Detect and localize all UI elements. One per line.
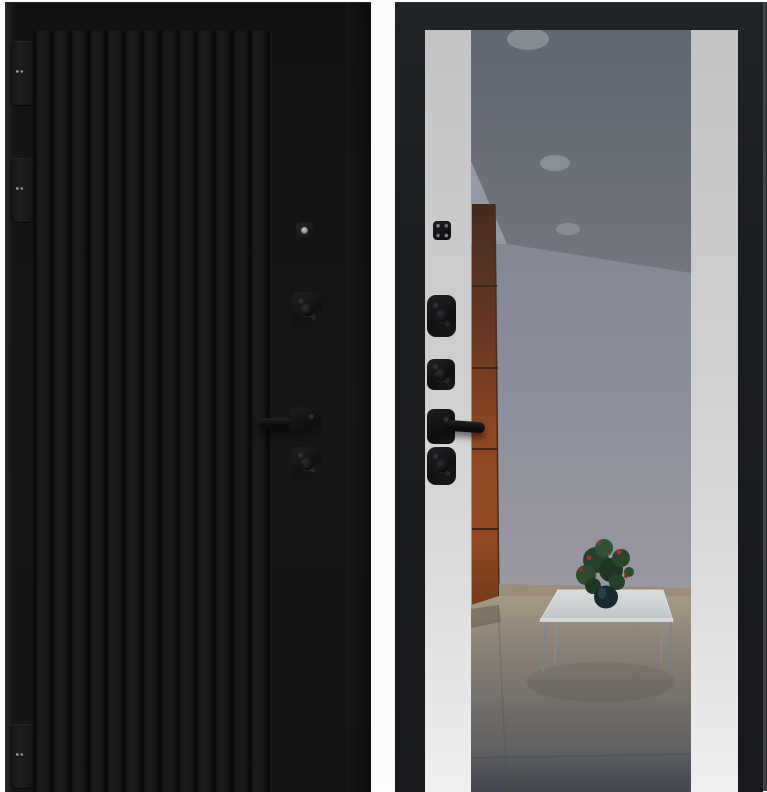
hinge-pin-dots (15, 70, 24, 73)
peephole-cylinder (296, 222, 313, 240)
hinge-bottom (10, 724, 33, 789)
side-panel-right (691, 30, 738, 792)
mirror-insert (471, 30, 691, 792)
keyhole-escutcheon-lower (292, 447, 321, 480)
hinge-pin-dots (15, 753, 24, 756)
keyhole (300, 457, 313, 470)
peephole-lens (301, 227, 308, 234)
keyhole-escutcheon-upper (292, 292, 322, 328)
door-panel-seam (347, 3, 348, 792)
hinge-pin-dots (15, 187, 24, 190)
hinge-top (10, 41, 33, 106)
door-edge-shading (353, 3, 371, 792)
lock-escutcheon-middle (427, 359, 455, 390)
photo-right-edge-shadow (763, 2, 767, 791)
mirror-reflection-scene (471, 30, 691, 792)
door-left-edge (5, 3, 13, 792)
handle-backplate-exterior (290, 407, 321, 439)
keyhole (435, 460, 448, 473)
door-interior-panel (395, 2, 763, 792)
door-interior-inlay (425, 30, 738, 792)
keyhole (435, 310, 448, 323)
keyhole (435, 368, 448, 381)
background-gap (371, 0, 395, 791)
lock-escutcheon-upper (427, 295, 456, 337)
lock-escutcheon-lower (427, 447, 456, 485)
keyhole (301, 304, 314, 317)
mirror-glass-tint (471, 30, 691, 792)
vertical-slat-milling (33, 31, 272, 792)
thumb-turn-square (433, 221, 451, 240)
hinge-middle (10, 158, 33, 223)
door-exterior-panel (5, 2, 371, 792)
